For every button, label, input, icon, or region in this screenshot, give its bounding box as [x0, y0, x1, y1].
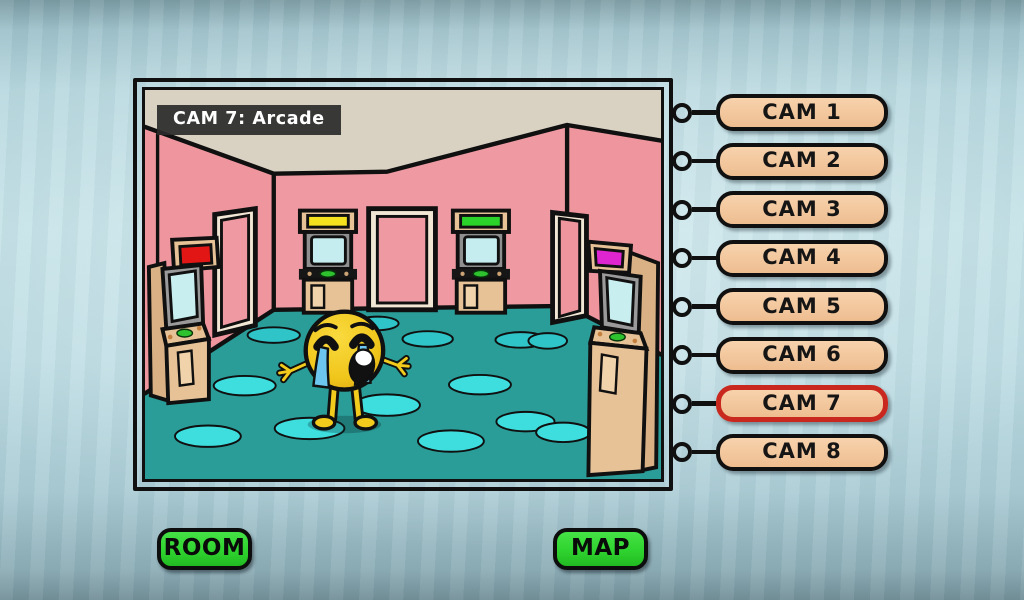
- arcade-cabinet-green: [452, 211, 510, 313]
- cam-8-button[interactable]: CAM 8: [716, 434, 888, 471]
- cam-wire: [692, 450, 716, 455]
- cam-node-dot: [672, 345, 692, 365]
- cam-2-button[interactable]: CAM 2: [716, 143, 888, 180]
- door-left: [215, 209, 256, 335]
- cam-wire: [692, 401, 716, 406]
- cam-node-dot: [672, 248, 692, 268]
- cam-node-dot: [672, 200, 692, 220]
- cam-row: CAM 2: [672, 143, 888, 180]
- camera-selector-panel: CAM 1 CAM 2 CAM 3 CAM 4 CAM 5 CAM 6: [672, 94, 888, 471]
- camera-viewport: CAM 7: Arcade: [133, 78, 673, 491]
- cam-wire: [692, 304, 716, 309]
- cam-node-dot: [672, 103, 692, 123]
- cam-6-button[interactable]: CAM 6: [716, 337, 888, 374]
- camera-feed: CAM 7: Arcade: [142, 87, 664, 482]
- cam-wire: [692, 110, 716, 115]
- cam-5-button[interactable]: CAM 5: [716, 288, 888, 325]
- cam-wire: [692, 256, 716, 261]
- cam-wire: [692, 353, 716, 358]
- cam-row: CAM 1: [672, 94, 888, 131]
- cam-node-dot: [672, 297, 692, 317]
- cam-wire: [692, 207, 716, 212]
- cam-node-dot: [672, 151, 692, 171]
- door-center: [369, 209, 436, 310]
- cam-wire: [692, 159, 716, 164]
- cam-row: CAM 3: [672, 191, 888, 228]
- arcade-cabinet-yellow: [299, 211, 357, 313]
- cam-row: CAM 7: [672, 385, 888, 422]
- cam-node-dot: [672, 442, 692, 462]
- cam-row: CAM 4: [672, 240, 888, 277]
- cam-row: CAM 6: [672, 337, 888, 374]
- cam-7-button[interactable]: CAM 7: [716, 385, 888, 422]
- cam-1-button[interactable]: CAM 1: [716, 94, 888, 131]
- map-button[interactable]: MAP: [553, 528, 648, 570]
- cam-row: CAM 5: [672, 288, 888, 325]
- cam-node-dot: [672, 394, 692, 414]
- cam-4-button[interactable]: CAM 4: [716, 240, 888, 277]
- game-screen: CAM 7: Arcade CAM 1 CAM 2 CAM 3 CAM 4 CA: [0, 0, 1024, 600]
- camera-label: CAM 7: Arcade: [157, 105, 341, 135]
- arcade-cabinet-magenta: [588, 242, 658, 475]
- arcade-room-scene: [145, 90, 661, 479]
- cam-3-button[interactable]: CAM 3: [716, 191, 888, 228]
- cam-row: CAM 8: [672, 434, 888, 471]
- room-button[interactable]: ROOM: [157, 528, 252, 570]
- door-right: [553, 213, 587, 323]
